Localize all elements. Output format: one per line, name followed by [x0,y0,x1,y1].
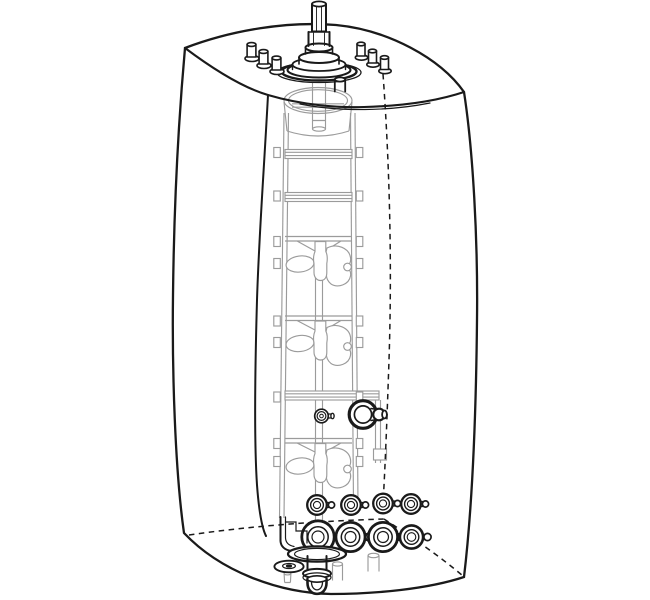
shaft-bearing [299,44,339,65]
bioreactor-diagram [0,0,650,600]
drain-flange [288,546,346,561]
drain-u-outlet [308,576,327,594]
washer-grommet [274,561,303,573]
illustration-stage [0,0,650,600]
